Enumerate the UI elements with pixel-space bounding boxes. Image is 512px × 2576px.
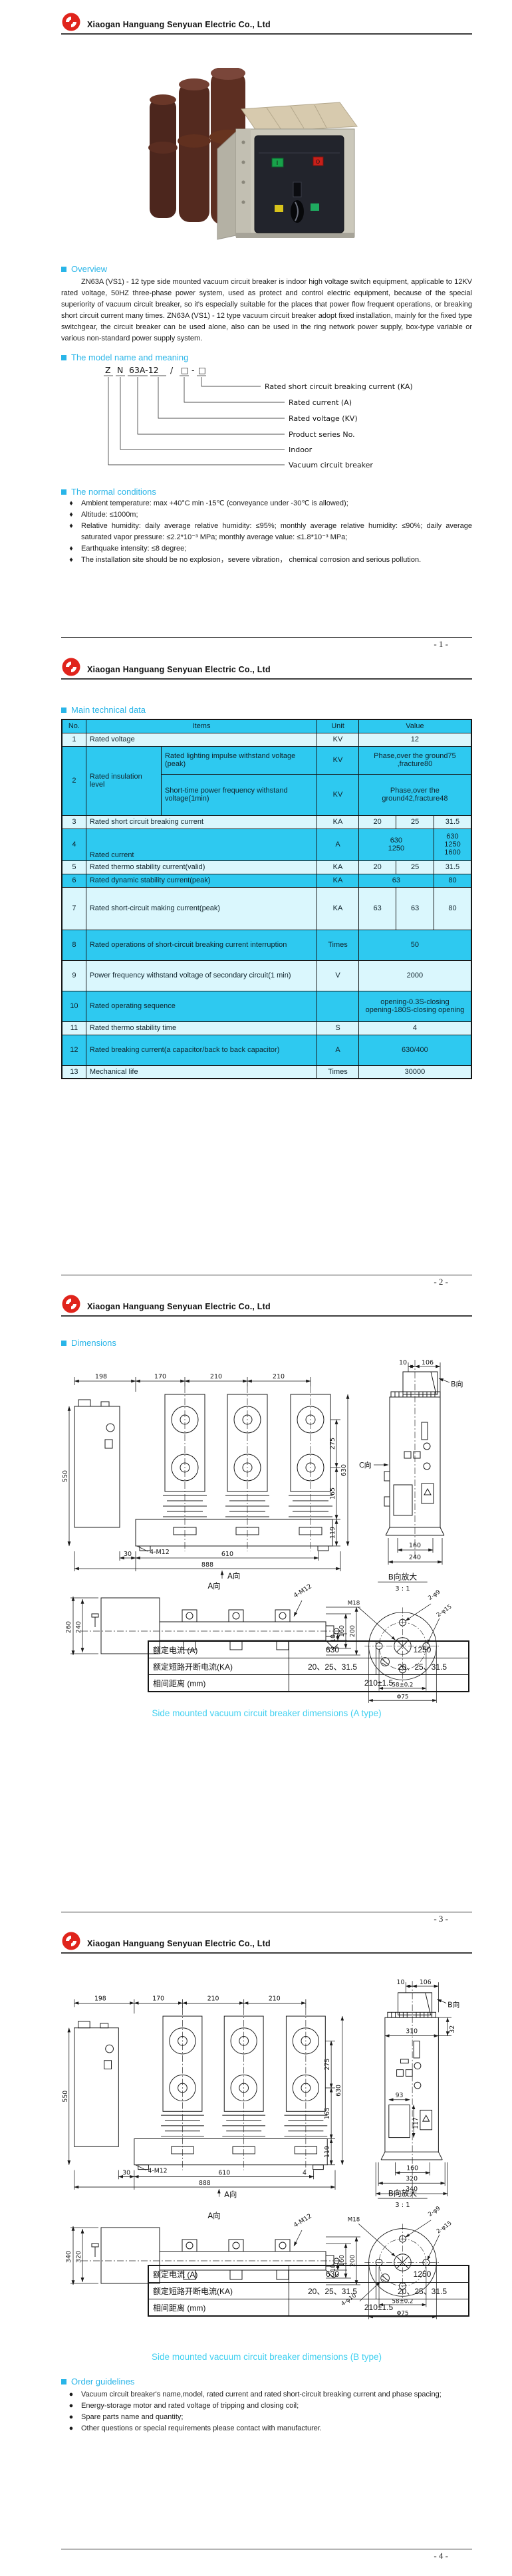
dimensions-heading: Dimensions	[61, 1338, 472, 1348]
view-b-label: B向	[451, 1379, 463, 1388]
close-button-glyph: I	[277, 160, 279, 167]
cell-item: Rated operations of short-circuit breaki…	[86, 930, 317, 960]
cell-unit: KA	[317, 860, 359, 874]
drawing-row-2: A向 340 320 10 160 200 4-M12	[61, 2206, 472, 2336]
drawing-caption: Side mounted vacuum circuit breaker dime…	[61, 2352, 472, 2362]
table-row: 3 Rated short circuit breaking current K…	[62, 815, 471, 829]
dim-240: 240	[75, 1621, 82, 1633]
dim-30: 30	[124, 1551, 132, 1558]
page-number: - 2 -	[61, 1277, 472, 1287]
page-header: Xiaogan Hanguang Senyuan Electric Co., L…	[61, 0, 472, 35]
cell-unit: A	[317, 829, 359, 860]
dimensions-title: Dimensions	[71, 1338, 116, 1348]
dim-275: 275	[329, 1438, 336, 1450]
page-number: - 3 -	[61, 1914, 472, 1924]
cell-item: Power frequency withstand voltage of sec…	[86, 960, 317, 991]
label-m18: M18	[348, 2217, 360, 2224]
table-row: 4 Rated current A 630 1250 630 1250 1600	[62, 829, 471, 860]
view-a-label: A向	[224, 2190, 237, 2199]
section-bullet	[61, 2379, 66, 2384]
dim-160: 160	[406, 2165, 418, 2172]
cell-value: 630	[289, 2265, 376, 2283]
cell-no: 3	[62, 815, 86, 829]
dim-610: 610	[221, 1551, 233, 1558]
model-label-breaking-current: Rated short circuit breaking current (KA…	[265, 382, 413, 391]
page2-content: Main technical data No. Items Unit Value…	[61, 705, 472, 1079]
dim-210a: 210	[207, 1996, 219, 2003]
dim-119: 119	[324, 2146, 331, 2158]
cell-item: Rated voltage	[86, 733, 317, 746]
section-bullet	[61, 1341, 66, 1346]
list-item: ●Spare parts name and quantity;	[61, 2412, 472, 2423]
page-header: Xiaogan Hanguang Senyuan Electric Co., L…	[61, 1927, 472, 1954]
condition-text: Earthquake intensity: ≤8 degree;	[81, 543, 472, 555]
cell-value: 20、25、31.5	[289, 1658, 376, 1675]
model-part-slash: /	[170, 365, 174, 375]
page-footer: - 1 -	[61, 637, 472, 650]
view-c-label: C向	[359, 1460, 372, 1470]
value-line: opening-0.3S-closing	[362, 998, 467, 1006]
cell-item: Rated short-circuit making current(peak)	[86, 887, 317, 930]
value-line: 630 1250	[438, 833, 467, 848]
side-view-geometry	[381, 1993, 442, 2160]
table-row: 相间距离 (mm) 210±1.5	[148, 1675, 469, 1692]
cell-value: 63	[358, 874, 434, 887]
view-b-label: B向	[448, 2000, 459, 2009]
dot-bullet-icon: ●	[61, 2412, 81, 2423]
cell-value: Phase,over the ground42,fracture48	[358, 774, 471, 815]
label-2phi9: 2-φ9	[427, 1589, 442, 1602]
cell-value: 50	[358, 930, 471, 960]
list-item: ♦Earthquake intensity: ≤8 degree;	[61, 543, 472, 555]
cell-value: opening-0.3S-closing opening-180S-closin…	[358, 991, 471, 1021]
main-data-heading: Main technical data	[61, 705, 472, 715]
order-text: Vacuum circuit breaker's name,model, rat…	[81, 2389, 472, 2400]
cell-unit: KA	[317, 874, 359, 887]
view-a-label: A向	[227, 1571, 240, 1579]
cell-value: 20、25、31.5	[289, 2283, 376, 2299]
cell-no: 6	[62, 874, 86, 887]
cell-value: 63	[396, 887, 434, 930]
order-text: Spare parts name and quantity;	[81, 2412, 472, 2423]
value-line: opening-180S-closing opening	[362, 1006, 467, 1014]
cell-value: 1250	[376, 1641, 469, 1658]
spec-table: 额定电流 (A) 630 1250 额定短路开断电流(KA) 20、25、31.…	[148, 1640, 469, 1692]
detail-title: B向放大	[388, 2189, 418, 2198]
model-name-diagram: Z N 63A-12 / □ - □ Ra	[61, 362, 472, 475]
overview-paragraph: ZN63A (VS1) - 12 type side mounted vacuu…	[61, 277, 472, 344]
product-photo: I O	[136, 68, 376, 256]
dim-310: 310	[406, 2028, 418, 2035]
col-items: Items	[86, 719, 317, 733]
table-row: 13 Mechanical life Times 30000	[62, 1065, 471, 1079]
cell-no: 12	[62, 1035, 86, 1065]
dim-260: 260	[65, 1621, 72, 1633]
conditions-title: The normal conditions	[71, 487, 156, 497]
cell-value: 80	[434, 887, 471, 930]
cell-unit: KV	[317, 746, 359, 774]
cell-unit: Times	[317, 930, 359, 960]
cell-no: 10	[62, 991, 86, 1021]
cell-value: 630 1250 1600	[434, 829, 471, 860]
cell-value: 4	[358, 1021, 471, 1035]
company-logo	[61, 1931, 81, 1951]
a-view-title: A向	[207, 2211, 220, 2220]
list-item: ●Other questions or special requirements…	[61, 2423, 472, 2434]
model-heading: The model name and meaning	[61, 352, 472, 362]
bolt-label: 4-M12	[150, 1549, 170, 1556]
label-2phi9: 2-φ9	[427, 2205, 442, 2218]
cell-value: 2000	[358, 960, 471, 991]
dim-630: 630	[340, 1464, 348, 1476]
model-title: The model name and meaning	[71, 352, 188, 362]
cell-value: 25	[396, 860, 434, 874]
dim-550: 550	[62, 2091, 69, 2103]
dim-phi75: Φ75	[397, 1694, 409, 1700]
list-item: ♦Altitude: ≤1000m;	[61, 509, 472, 521]
list-item: ●Vacuum circuit breaker's name,model, ra…	[61, 2389, 472, 2400]
cell-item: Rated thermo stability current(valid)	[86, 860, 317, 874]
value-line: 1250	[362, 844, 430, 852]
dot-bullet-icon: ●	[61, 2389, 81, 2400]
dim-320: 320	[75, 2251, 82, 2263]
model-label-vcb: Vacuum circuit breaker	[289, 461, 373, 469]
page-2: Xiaogan Hanguang Senyuan Electric Co., L…	[0, 653, 512, 1290]
order-text: Energy-storage motor and rated voltage o…	[81, 2400, 472, 2412]
dim-550: 550	[62, 1470, 69, 1482]
dim-275: 275	[324, 2059, 331, 2071]
side-view-dim-lines	[376, 1982, 451, 2196]
cell-label: 相间距离 (mm)	[148, 2299, 289, 2317]
cell-value: 20	[358, 815, 396, 829]
company-name: Xiaogan Hanguang Senyuan Electric Co., L…	[87, 1302, 271, 1314]
diamond-bullet-icon: ♦	[61, 555, 81, 566]
overview-heading: Overview	[61, 264, 472, 274]
dim-32: 32	[449, 2025, 456, 2033]
condition-text: Ambient temperature: max +40°C min -15℃ …	[81, 498, 472, 509]
company-name: Xiaogan Hanguang Senyuan Electric Co., L…	[87, 1939, 271, 1951]
dim-165: 165	[324, 2107, 331, 2119]
detail-scale: 3 : 1	[395, 2202, 410, 2209]
dim-119: 119	[329, 1527, 336, 1539]
dim-210b: 210	[273, 1373, 285, 1380]
cell-label: 相间距离 (mm)	[148, 1675, 289, 1692]
front-view-centerlines	[182, 2008, 305, 2170]
bolt-label: 4-M12	[293, 1583, 313, 1599]
bolt-label: 4-M12	[148, 2167, 167, 2174]
bolt-label: 4-M12	[293, 2212, 313, 2229]
label-2phi15: 2-φ15	[436, 1604, 453, 1619]
table-row: 7 Rated short-circuit making current(pea…	[62, 887, 471, 930]
cell-subitem: Short-time power frequency withstand vol…	[161, 774, 317, 815]
cell-label: 额定电流 (A)	[148, 2265, 289, 2283]
diamond-bullet-icon: ♦	[61, 543, 81, 555]
cell-item: Rated short circuit breaking current	[86, 815, 317, 829]
table-row: 额定电流 (A) 630 1250	[148, 2265, 469, 2283]
table-row: 12 Rated breaking current(a capacitor/ba…	[62, 1035, 471, 1065]
page1-content: Overview ZN63A (VS1) - 12 type side moun…	[61, 264, 472, 566]
cell-value: 30000	[358, 1065, 471, 1079]
table-row: 额定短路开断电流(KA) 20、25、31.5 20、25、31.5	[148, 1658, 469, 1675]
table-row: 10 Rated operating sequence opening-0.3S…	[62, 991, 471, 1021]
dim-10: 10	[396, 1979, 404, 1986]
table-header-row: No. Items Unit Value	[62, 719, 471, 733]
cell-value: 630	[289, 1641, 376, 1658]
cell-unit: S	[317, 1021, 359, 1035]
diamond-bullet-icon: ♦	[61, 521, 81, 543]
dim-888: 888	[201, 1561, 213, 1569]
front-view-drawing: 198 170 210 210 550 275 165 119 630 30 6…	[61, 1353, 354, 1579]
front-panel: I O	[255, 136, 344, 233]
side-view-drawing: 10 106 B向 C向 160 240	[358, 1353, 472, 1579]
company-name: Xiaogan Hanguang Senyuan Electric Co., L…	[87, 20, 271, 32]
section-bullet	[61, 708, 66, 713]
cell-value: 630/400	[358, 1035, 471, 1065]
model-leader-lines	[108, 377, 285, 465]
table-row: 11 Rated thermo stability time S 4	[62, 1021, 471, 1035]
table-row: 2 Rated insulation level Rated lighting …	[62, 746, 471, 774]
page-footer: - 4 -	[61, 2549, 472, 2561]
company-name: Xiaogan Hanguang Senyuan Electric Co., L…	[87, 665, 271, 677]
cell-subitem: Rated lighting impulse withstand voltage…	[161, 746, 317, 774]
section-bullet	[61, 267, 66, 272]
cell-no: 13	[62, 1065, 86, 1079]
cell-value: 12	[358, 733, 471, 746]
cell-item: Mechanical life	[86, 1065, 317, 1079]
side-view-drawing: 10 106 B向 310 32 93 117 160 320 340	[348, 1974, 472, 2206]
cell-value: 20	[358, 860, 396, 874]
model-part-box1: □	[181, 365, 189, 375]
cell-no: 2	[62, 746, 86, 815]
cell-label: 额定短路开断电流(KA)	[148, 1658, 289, 1675]
cell-value: 31.5	[434, 815, 471, 829]
model-part-series: 63A-12	[129, 365, 159, 375]
dim-170: 170	[152, 1996, 164, 2003]
main-data-title: Main technical data	[71, 705, 146, 715]
cell-unit	[317, 991, 359, 1021]
list-item: ♦Relative humidity: daily average relati…	[61, 521, 472, 543]
cell-value: 63	[358, 887, 396, 930]
page3-content: Dimensions	[61, 1338, 472, 1718]
page-1: Xiaogan Hanguang Senyuan Electric Co., L…	[0, 0, 512, 653]
cell-unit: KA	[317, 815, 359, 829]
page-3: Xiaogan Hanguang Senyuan Electric Co., L…	[0, 1290, 512, 1927]
order-title: Order guidelines	[71, 2377, 134, 2386]
table-row: 8 Rated operations of short-circuit brea…	[62, 930, 471, 960]
drawing-row-2: A向 260 240 10 160 200 4-M12	[61, 1579, 472, 1706]
col-value: Value	[358, 719, 471, 733]
front-view-drawing: 198 170 210 210 550 275 165 119 630 30 6…	[61, 1974, 348, 2200]
drawing-row-1: 198 170 210 210 550 275 165 119 630 30 6…	[61, 1353, 472, 1579]
front-view-geometry	[74, 2016, 328, 2170]
cell-no: 1	[62, 733, 86, 746]
company-logo	[61, 1294, 81, 1314]
dim-210a: 210	[210, 1373, 222, 1380]
dim-30: 30	[122, 2169, 130, 2176]
table-row: 额定短路开断电流(KA) 20、25、31.5 20、25、31.5	[148, 2283, 469, 2299]
cell-value: 1250	[376, 2265, 469, 2283]
cell-value: 210±1.5	[289, 1675, 469, 1692]
list-item: ♦Ambient temperature: max +40°C min -15℃…	[61, 498, 472, 509]
cell-label: 额定电流 (A)	[148, 1641, 289, 1658]
cell-no: 7	[62, 887, 86, 930]
dim-106: 106	[419, 1979, 431, 1986]
cell-no: 5	[62, 860, 86, 874]
diamond-bullet-icon: ♦	[61, 498, 81, 509]
model-label-indoor: Indoor	[289, 446, 313, 454]
conditions-heading: The normal conditions	[61, 487, 472, 497]
table-row: 额定电流 (A) 630 1250	[148, 1641, 469, 1658]
cell-label: 额定短路开断电流(KA)	[148, 2283, 289, 2299]
order-heading: Order guidelines	[61, 2377, 472, 2386]
dim-210b: 210	[269, 1996, 281, 2003]
dim-240: 240	[409, 1554, 421, 1561]
cell-unit: KV	[317, 774, 359, 815]
dot-bullet-icon: ●	[61, 2400, 81, 2412]
col-no: No.	[62, 719, 86, 733]
spec-table: 额定电流 (A) 630 1250 额定短路开断电流(KA) 20、25、31.…	[148, 2265, 469, 2317]
model-label-rated-current: Rated current (A)	[289, 398, 352, 407]
page-header: Xiaogan Hanguang Senyuan Electric Co., L…	[61, 1290, 472, 1317]
dim-610: 610	[218, 2169, 230, 2176]
cell-no: 11	[62, 1021, 86, 1035]
technical-data-table: No. Items Unit Value 1 Rated voltage KV …	[61, 719, 472, 1079]
cell-unit: V	[317, 960, 359, 991]
cell-item: Rated thermo stability time	[86, 1021, 317, 1035]
page-footer: - 3 -	[61, 1912, 472, 1924]
cell-value: 630 1250	[358, 829, 434, 860]
dim-340: 340	[65, 2251, 72, 2263]
front-view-geometry	[74, 1394, 332, 1551]
breaker-photo-illustration: I O	[136, 68, 376, 253]
model-part-box2: □	[198, 365, 206, 375]
conditions-list: ♦Ambient temperature: max +40°C min -15℃…	[61, 498, 472, 566]
cell-unit: A	[317, 1035, 359, 1065]
side-view-geometry	[384, 1372, 444, 1535]
page-number: - 1 -	[61, 639, 472, 650]
label-m18: M18	[348, 1601, 360, 1607]
cell-value: Phase,over the ground75 ,fracture80	[358, 746, 471, 774]
detail-title: B向放大	[388, 1573, 418, 1582]
model-part-z: Z	[105, 365, 111, 375]
dim-630: 630	[335, 2085, 342, 2097]
dim-117: 117	[412, 2117, 420, 2129]
cell-no: 9	[62, 960, 86, 991]
table-row: 5 Rated thermo stability current(valid) …	[62, 860, 471, 874]
cell-unit: KV	[317, 733, 359, 746]
list-item: ♦The installation site should be no expl…	[61, 555, 472, 566]
table-row: 6 Rated dynamic stability current(peak) …	[62, 874, 471, 887]
cell-item: Rated operating sequence	[86, 991, 317, 1021]
table-row: 9 Power frequency withstand voltage of s…	[62, 960, 471, 991]
company-logo	[61, 657, 81, 677]
value-line: 1600	[438, 848, 467, 856]
open-button-glyph: O	[316, 159, 320, 165]
cell-value: 25	[396, 815, 434, 829]
drawing-row-1: 198 170 210 210 550 275 165 119 630 30 6…	[61, 1974, 472, 2206]
dim-198: 198	[94, 1996, 106, 2003]
dim-160: 160	[409, 1542, 421, 1549]
list-item: ●Energy-storage motor and rated voltage …	[61, 2400, 472, 2412]
company-logo	[61, 12, 81, 32]
section-bullet	[61, 355, 66, 360]
model-label-series-no: Product series No.	[289, 430, 355, 439]
page-number: - 4 -	[61, 2551, 472, 2561]
cell-value: 31.5	[434, 860, 471, 874]
a-view-title: A向	[207, 1581, 220, 1591]
section-bullet	[61, 489, 66, 495]
col-unit: Unit	[317, 719, 359, 733]
page-header: Xiaogan Hanguang Senyuan Electric Co., L…	[61, 653, 472, 680]
value-line: 630	[362, 837, 430, 844]
cell-item: Rated insulation level	[86, 746, 161, 815]
model-part-dash: -	[192, 365, 195, 375]
dim-198: 198	[95, 1373, 107, 1380]
condition-text: The installation site should be no explo…	[81, 555, 472, 566]
page-footer: - 2 -	[61, 1275, 472, 1287]
model-label-rated-voltage: Rated voltage (KV)	[289, 414, 358, 423]
dim-165: 165	[329, 1487, 336, 1499]
dim-10: 10	[399, 1359, 407, 1366]
page4-content: 198 170 210 210 550 275 165 119 630 30 6…	[61, 1974, 472, 2434]
front-view-centerlines	[185, 1386, 311, 1551]
model-part-n: N	[117, 365, 123, 375]
condition-text: Relative humidity: daily average relativ…	[81, 521, 472, 543]
cell-value: 80	[434, 874, 471, 887]
order-list: ●Vacuum circuit breaker's name,model, ra…	[61, 2389, 472, 2434]
cell-item: Rated current	[86, 829, 317, 860]
cell-item: Rated breaking current(a capacitor/back …	[86, 1035, 317, 1065]
cell-value: 20、25、31.5	[376, 1658, 469, 1675]
dot-bullet-icon: ●	[61, 2423, 81, 2434]
overview-title: Overview	[71, 264, 107, 274]
cell-no: 4	[62, 829, 86, 860]
page-4: Xiaogan Hanguang Senyuan Electric Co., L…	[0, 1927, 512, 2576]
dim-320: 320	[406, 2175, 418, 2182]
dim-888: 888	[199, 2180, 211, 2187]
table-row: 1 Rated voltage KV 12	[62, 733, 471, 746]
dim-106: 106	[422, 1359, 434, 1366]
diamond-bullet-icon: ♦	[61, 509, 81, 521]
dim-93: 93	[395, 2092, 403, 2099]
cell-unit: KA	[317, 887, 359, 930]
dim-4: 4	[303, 2169, 307, 2176]
table-row: 相间距离 (mm) 210±1.5	[148, 2299, 469, 2317]
detail-scale: 3 : 1	[395, 1585, 410, 1593]
cell-value: 20、25、31.5	[376, 2283, 469, 2299]
order-text: Other questions or special requirements …	[81, 2423, 472, 2434]
cell-unit: Times	[317, 1065, 359, 1079]
cell-value: 210±1.5	[289, 2299, 469, 2317]
cell-item: Rated dynamic stability current(peak)	[86, 874, 317, 887]
label-2phi15: 2-φ15	[436, 2220, 453, 2236]
side-view-dim-lines	[374, 1362, 449, 1565]
cell-no: 8	[62, 930, 86, 960]
dim-170: 170	[154, 1373, 166, 1380]
condition-text: Altitude: ≤1000m;	[81, 509, 472, 521]
